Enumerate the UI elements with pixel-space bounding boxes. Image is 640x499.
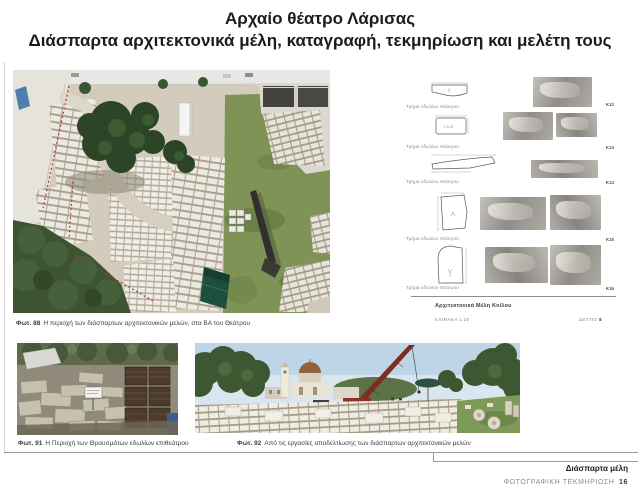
catalog-code-4: Κ15 [592, 237, 614, 242]
catalog-photo-2b [556, 113, 597, 137]
fragments-photo-image [17, 343, 178, 435]
catalog-scale: ΚΛΙΜΑΚΑ 1:20 [435, 317, 470, 322]
catalog-photo-2a [503, 112, 553, 140]
aerial-photo [13, 70, 330, 313]
catalog-code-5: Κ16 [592, 286, 614, 291]
catalog-code-3: Κ14 [592, 180, 614, 185]
catalog-sheet-number: ΔΕΛΤΙΟ 8 [544, 317, 602, 322]
catalog-drawing-3 [430, 152, 498, 178]
catalog-photo-5a [485, 247, 548, 283]
catalog-sheet-label: ΔΕΛΤΙΟ [579, 317, 598, 322]
catalog-photo-1 [533, 77, 592, 107]
catalog-photo-3 [531, 160, 598, 178]
catalog-drawing-2: Τ Δ Ψ [433, 114, 469, 138]
caption-fragments-text: Η Περιοχή των Θραυσμάτων εδωλίων επιθεάτ… [45, 440, 188, 447]
catalog-photo-5b [550, 245, 601, 285]
caption-crane-text: Από τις εργασίες αποδελτίωσης των διάσπα… [264, 440, 470, 447]
catalog-drawing-5 [434, 243, 468, 285]
svg-text:Τ Δ Ψ: Τ Δ Ψ [443, 124, 454, 129]
caption-main-text: Η περιοχή των διάσπαρτων αρχιτεκτονικών … [43, 320, 250, 327]
crane-works-photo-image [195, 343, 520, 433]
aerial-photo-image [13, 70, 330, 313]
caption-crane-label: Φωτ. 92 [237, 440, 261, 447]
catalog-caption-2: Τμήμα εδωλίου Θεάτρου [406, 144, 459, 149]
catalog-caption-5: Τμήμα εδωλίου Θεάτρου [406, 285, 459, 290]
catalog-drawing-4 [436, 192, 474, 232]
fragments-photo [17, 343, 178, 435]
catalog-photo-4a [480, 197, 546, 230]
page-number: 16 [619, 479, 628, 486]
caption-fragments-photo: Φωτ. 91Η Περιοχή των Θραυσμάτων εδωλίων … [18, 440, 189, 447]
title-block: Αρχαίο θέατρο Λάρισας Διάσπαρτα αρχιτεκτ… [0, 8, 640, 52]
catalog-caption-3: Τμήμα εδωλίου Θεάτρου [406, 179, 459, 184]
page-title-line1: Αρχαίο θέατρο Λάρισας [0, 8, 640, 30]
section-label: Διάσπαρτα μέλη [566, 464, 628, 473]
catalog-photo-4b [550, 195, 601, 230]
catalog-caption-4: Τμήμα εδωλίου Θεάτρου [406, 236, 459, 241]
catalog-footer-title: Αρχιτεκτονικά Μέλη Κοίλου [435, 303, 512, 309]
caption-fragments-label: Φωτ. 91 [18, 440, 42, 447]
catalog-caption-1: Τμήμα εδωλίου Θεάτρου [406, 104, 459, 109]
caption-crane-photo: Φωτ. 92Από τις εργασίες αποδελτίωσης των… [237, 440, 471, 447]
caption-main-photo: Φωτ. 88Η περιοχή των διάσπαρτων αρχιτεκτ… [16, 320, 250, 327]
catalog-sheet-no: 8 [599, 317, 602, 322]
catalog-drawing-1 [430, 82, 470, 100]
catalog-code-2: Κ13 [592, 145, 614, 150]
catalog-code-1: Κ12 [592, 102, 614, 107]
footer-rule [4, 452, 638, 453]
crane-works-photo [195, 343, 520, 433]
footer-cell-rule [433, 461, 638, 462]
catalog-sheet: Τμήμα εδωλίου Θεάτρου Κ12 Τ Δ Ψ Τμήμα εδ… [398, 72, 640, 340]
slide-page: Αρχαίο θέατρο Λάρισας Διάσπαρτα αρχιτεκτ… [0, 0, 640, 499]
doc-type-text: ΦΩΤΟΓΡΑΦΙΚΗ ΤΕΚΜΗΡΙΩΣΗ [504, 479, 615, 486]
page-title-line2: Διάσπαρτα αρχιτεκτονικά μέλη, καταγραφή,… [0, 30, 640, 52]
slide-left-border [4, 62, 5, 452]
doc-type-label: ΦΩΤΟΓΡΑΦΙΚΗ ΤΕΚΜΗΡΙΩΣΗ 16 [504, 479, 628, 486]
caption-main-label: Φωτ. 88 [16, 320, 40, 327]
catalog-footer-rule [411, 296, 616, 297]
